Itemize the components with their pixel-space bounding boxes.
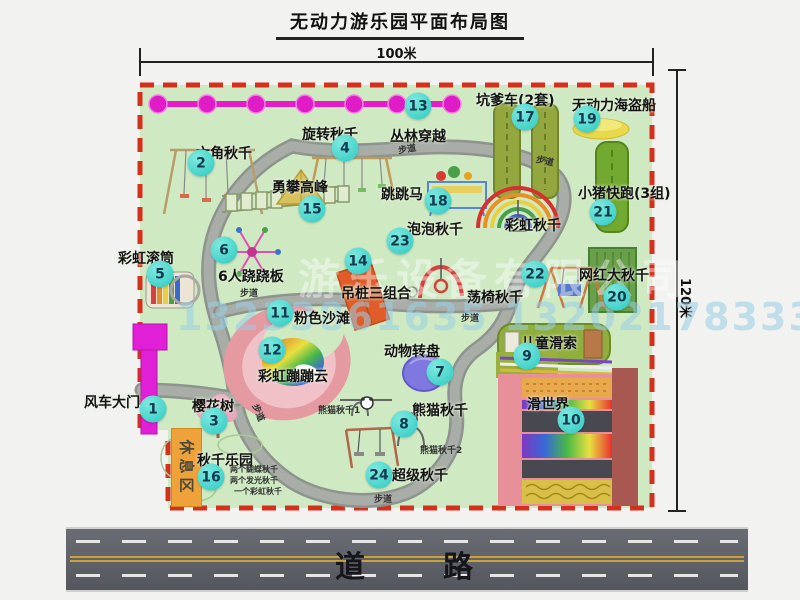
- attraction-label-24: 超级秋千: [392, 465, 448, 485]
- attraction-marker-23: 23: [387, 228, 414, 255]
- attraction-markers-layer: 风车大门1六角秋千2樱花树3旋转秋千4彩虹滚筒56人跷跷板6动物转盘7熊猫秋千8…: [0, 0, 800, 600]
- attraction-label-20: 网红大秋千: [579, 265, 649, 285]
- attraction-label-6: 6人跷跷板: [218, 266, 284, 286]
- map-note-label: 一个彩虹秋千: [234, 486, 282, 497]
- attraction-marker-1: 1: [140, 396, 167, 423]
- map-note-label: 步道: [397, 141, 417, 157]
- attraction-label-23: 泡泡秋千: [407, 219, 463, 239]
- attraction-marker-3: 3: [201, 408, 228, 435]
- attraction-label-extra: 彩虹秋千: [505, 215, 561, 235]
- attraction-marker-6: 6: [211, 237, 238, 264]
- attraction-marker-24: 24: [366, 462, 393, 489]
- attraction-marker-15: 15: [299, 196, 326, 223]
- attraction-label-11: 粉色沙滩: [294, 308, 350, 328]
- attraction-marker-13: 13: [405, 93, 432, 120]
- map-note-label: 步道: [250, 402, 269, 424]
- map-note-label: 步道: [374, 492, 392, 505]
- attraction-marker-10: 10: [558, 407, 585, 434]
- attraction-marker-20: 20: [604, 284, 631, 311]
- attraction-marker-12: 12: [259, 337, 286, 364]
- attraction-label-18: 跳跳马: [381, 184, 423, 204]
- attraction-marker-9: 9: [514, 343, 541, 370]
- map-note-label: 熊猫秋千1: [318, 403, 360, 416]
- map-note-label: 步道: [240, 286, 258, 299]
- attraction-marker-17: 17: [512, 104, 539, 131]
- attraction-marker-21: 21: [590, 199, 617, 226]
- map-note-label: 步道: [461, 311, 479, 324]
- attraction-marker-5: 5: [147, 261, 174, 288]
- map-note-label: 两个蝴蝶秋千: [230, 464, 278, 475]
- attraction-marker-2: 2: [188, 150, 215, 177]
- attraction-marker-18: 18: [425, 188, 452, 215]
- attraction-marker-4: 4: [332, 135, 359, 162]
- attraction-label-22: 荡椅秋千: [467, 287, 523, 307]
- attraction-label-14: 吊桩三组合: [341, 283, 411, 303]
- attraction-marker-8: 8: [391, 411, 418, 438]
- attraction-marker-11: 11: [267, 300, 294, 327]
- map-note-label: 两个发光秋千: [230, 475, 278, 486]
- attraction-label-1: 风车大门: [84, 392, 140, 412]
- attraction-label-8: 熊猫秋千: [412, 400, 468, 420]
- attraction-marker-16: 16: [198, 464, 225, 491]
- map-note-label: 熊猫秋千2: [420, 443, 462, 456]
- attraction-marker-14: 14: [345, 248, 372, 275]
- attraction-label-21: 小猪快跑(3组): [578, 183, 671, 203]
- attraction-label-7: 动物转盘: [384, 341, 440, 361]
- map-note-label: 步道: [535, 152, 555, 168]
- attraction-marker-22: 22: [522, 261, 549, 288]
- playground-layout-map: 无动力游乐园平面布局图 100米 120米: [0, 0, 800, 600]
- attraction-label-15: 勇攀高峰: [272, 177, 328, 197]
- attraction-label-12: 彩虹蹦蹦云: [258, 366, 328, 386]
- attraction-marker-19: 19: [574, 106, 601, 133]
- attraction-marker-7: 7: [427, 359, 454, 386]
